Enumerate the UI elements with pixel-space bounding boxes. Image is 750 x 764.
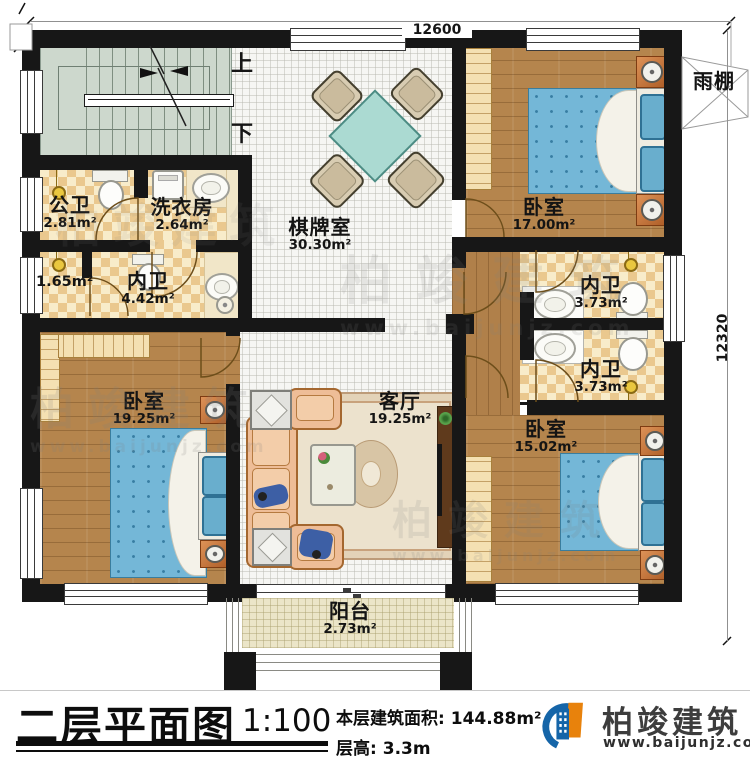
floor-height-label: 层高: bbox=[336, 739, 377, 759]
room-area: 15.02m² bbox=[508, 440, 584, 455]
room-label-laundry: 洗衣房 2.64m² bbox=[140, 196, 224, 234]
stair-up-label: 上 bbox=[231, 46, 253, 78]
room-name: 内卫 bbox=[566, 358, 636, 380]
room-label-game-room: 棋牌室 30.30m² bbox=[282, 216, 358, 254]
floorplan-canvas: 12600 12320 上 下 公卫 2.81m² 洗衣房 2.64m² 棋牌室… bbox=[0, 0, 750, 690]
dimension-ticks bbox=[14, 3, 735, 645]
room-label-balcony: 阳台 2.73m² bbox=[312, 600, 388, 638]
stair-break-line bbox=[150, 46, 186, 126]
floor-height-value: 3.3m bbox=[383, 739, 431, 759]
room-area: 19.25m² bbox=[104, 412, 184, 427]
room-label-bath-lower: 内卫 3.73m² bbox=[566, 358, 636, 396]
room-label-bedroom-top-right: 卧室 17.00m² bbox=[504, 196, 584, 234]
corner-marker-box bbox=[10, 24, 32, 50]
room-area: 2.64m² bbox=[140, 218, 224, 233]
room-label-bath-left: 内卫 4.42m² bbox=[112, 270, 184, 308]
room-area: 2.73m² bbox=[312, 622, 388, 637]
floor-height-row: 层高: 3.3m bbox=[336, 734, 431, 759]
room-area: 30.30m² bbox=[282, 238, 358, 253]
room-label-closet: 1.65m² bbox=[36, 274, 92, 290]
room-area: 19.25m² bbox=[354, 412, 446, 427]
room-name: 卧室 bbox=[504, 196, 584, 218]
stair-down-label: 下 bbox=[231, 116, 253, 148]
room-name: 卧室 bbox=[104, 390, 184, 412]
rain-canopy-outline bbox=[682, 57, 748, 129]
room-name: 雨棚 bbox=[682, 70, 746, 92]
room-label-canopy: 雨棚 bbox=[682, 70, 746, 92]
floorplan-page: { "dimensions": { "width_label": "12600"… bbox=[0, 0, 750, 763]
title-underline-thick bbox=[16, 741, 328, 746]
dimension-line-top bbox=[30, 21, 731, 22]
room-name: 棋牌室 bbox=[282, 216, 358, 238]
room-area: 3.73m² bbox=[566, 380, 636, 395]
dimension-width: 12600 bbox=[402, 22, 472, 38]
title-underline-thin bbox=[16, 750, 328, 752]
plan-scale: 1:100 bbox=[242, 703, 331, 739]
brand-logo-icon bbox=[540, 695, 598, 753]
room-name: 卧室 bbox=[508, 418, 584, 440]
room-area: 4.42m² bbox=[112, 292, 184, 307]
plan-annotations-svg bbox=[0, 0, 750, 690]
room-name: 洗衣房 bbox=[140, 196, 224, 218]
room-area: 3.73m² bbox=[566, 296, 636, 311]
room-name: 内卫 bbox=[112, 270, 184, 292]
floor-area-label: 本层建筑面积: bbox=[336, 709, 445, 729]
stair-direction-arrows bbox=[140, 66, 188, 78]
room-label-public-bath: 公卫 2.81m² bbox=[34, 194, 106, 232]
room-area: 2.81m² bbox=[34, 216, 106, 231]
room-label-bath-upper: 内卫 3.73m² bbox=[566, 274, 636, 312]
floor-area-value: 144.88m² bbox=[451, 709, 542, 729]
room-name: 内卫 bbox=[566, 274, 636, 296]
room-name: 客厅 bbox=[354, 390, 446, 412]
room-area: 17.00m² bbox=[504, 218, 584, 233]
room-name: 阳台 bbox=[312, 600, 388, 622]
brand-website: www.baijunjz.com bbox=[603, 735, 750, 751]
dimension-height: 12320 bbox=[715, 305, 731, 371]
floor-area-row: 本层建筑面积: 144.88m² bbox=[336, 704, 542, 729]
title-block: 二层平面图 1:100 本层建筑面积: 144.88m² 层高: 3.3m 柏竣… bbox=[0, 690, 750, 764]
room-area: 1.65m² bbox=[36, 274, 92, 290]
room-name: 公卫 bbox=[34, 194, 106, 216]
room-label-bedroom-bottom-right: 卧室 15.02m² bbox=[508, 418, 584, 456]
room-label-living-room: 客厅 19.25m² bbox=[354, 390, 446, 428]
room-label-bedroom-bottom-left: 卧室 19.25m² bbox=[104, 390, 184, 428]
